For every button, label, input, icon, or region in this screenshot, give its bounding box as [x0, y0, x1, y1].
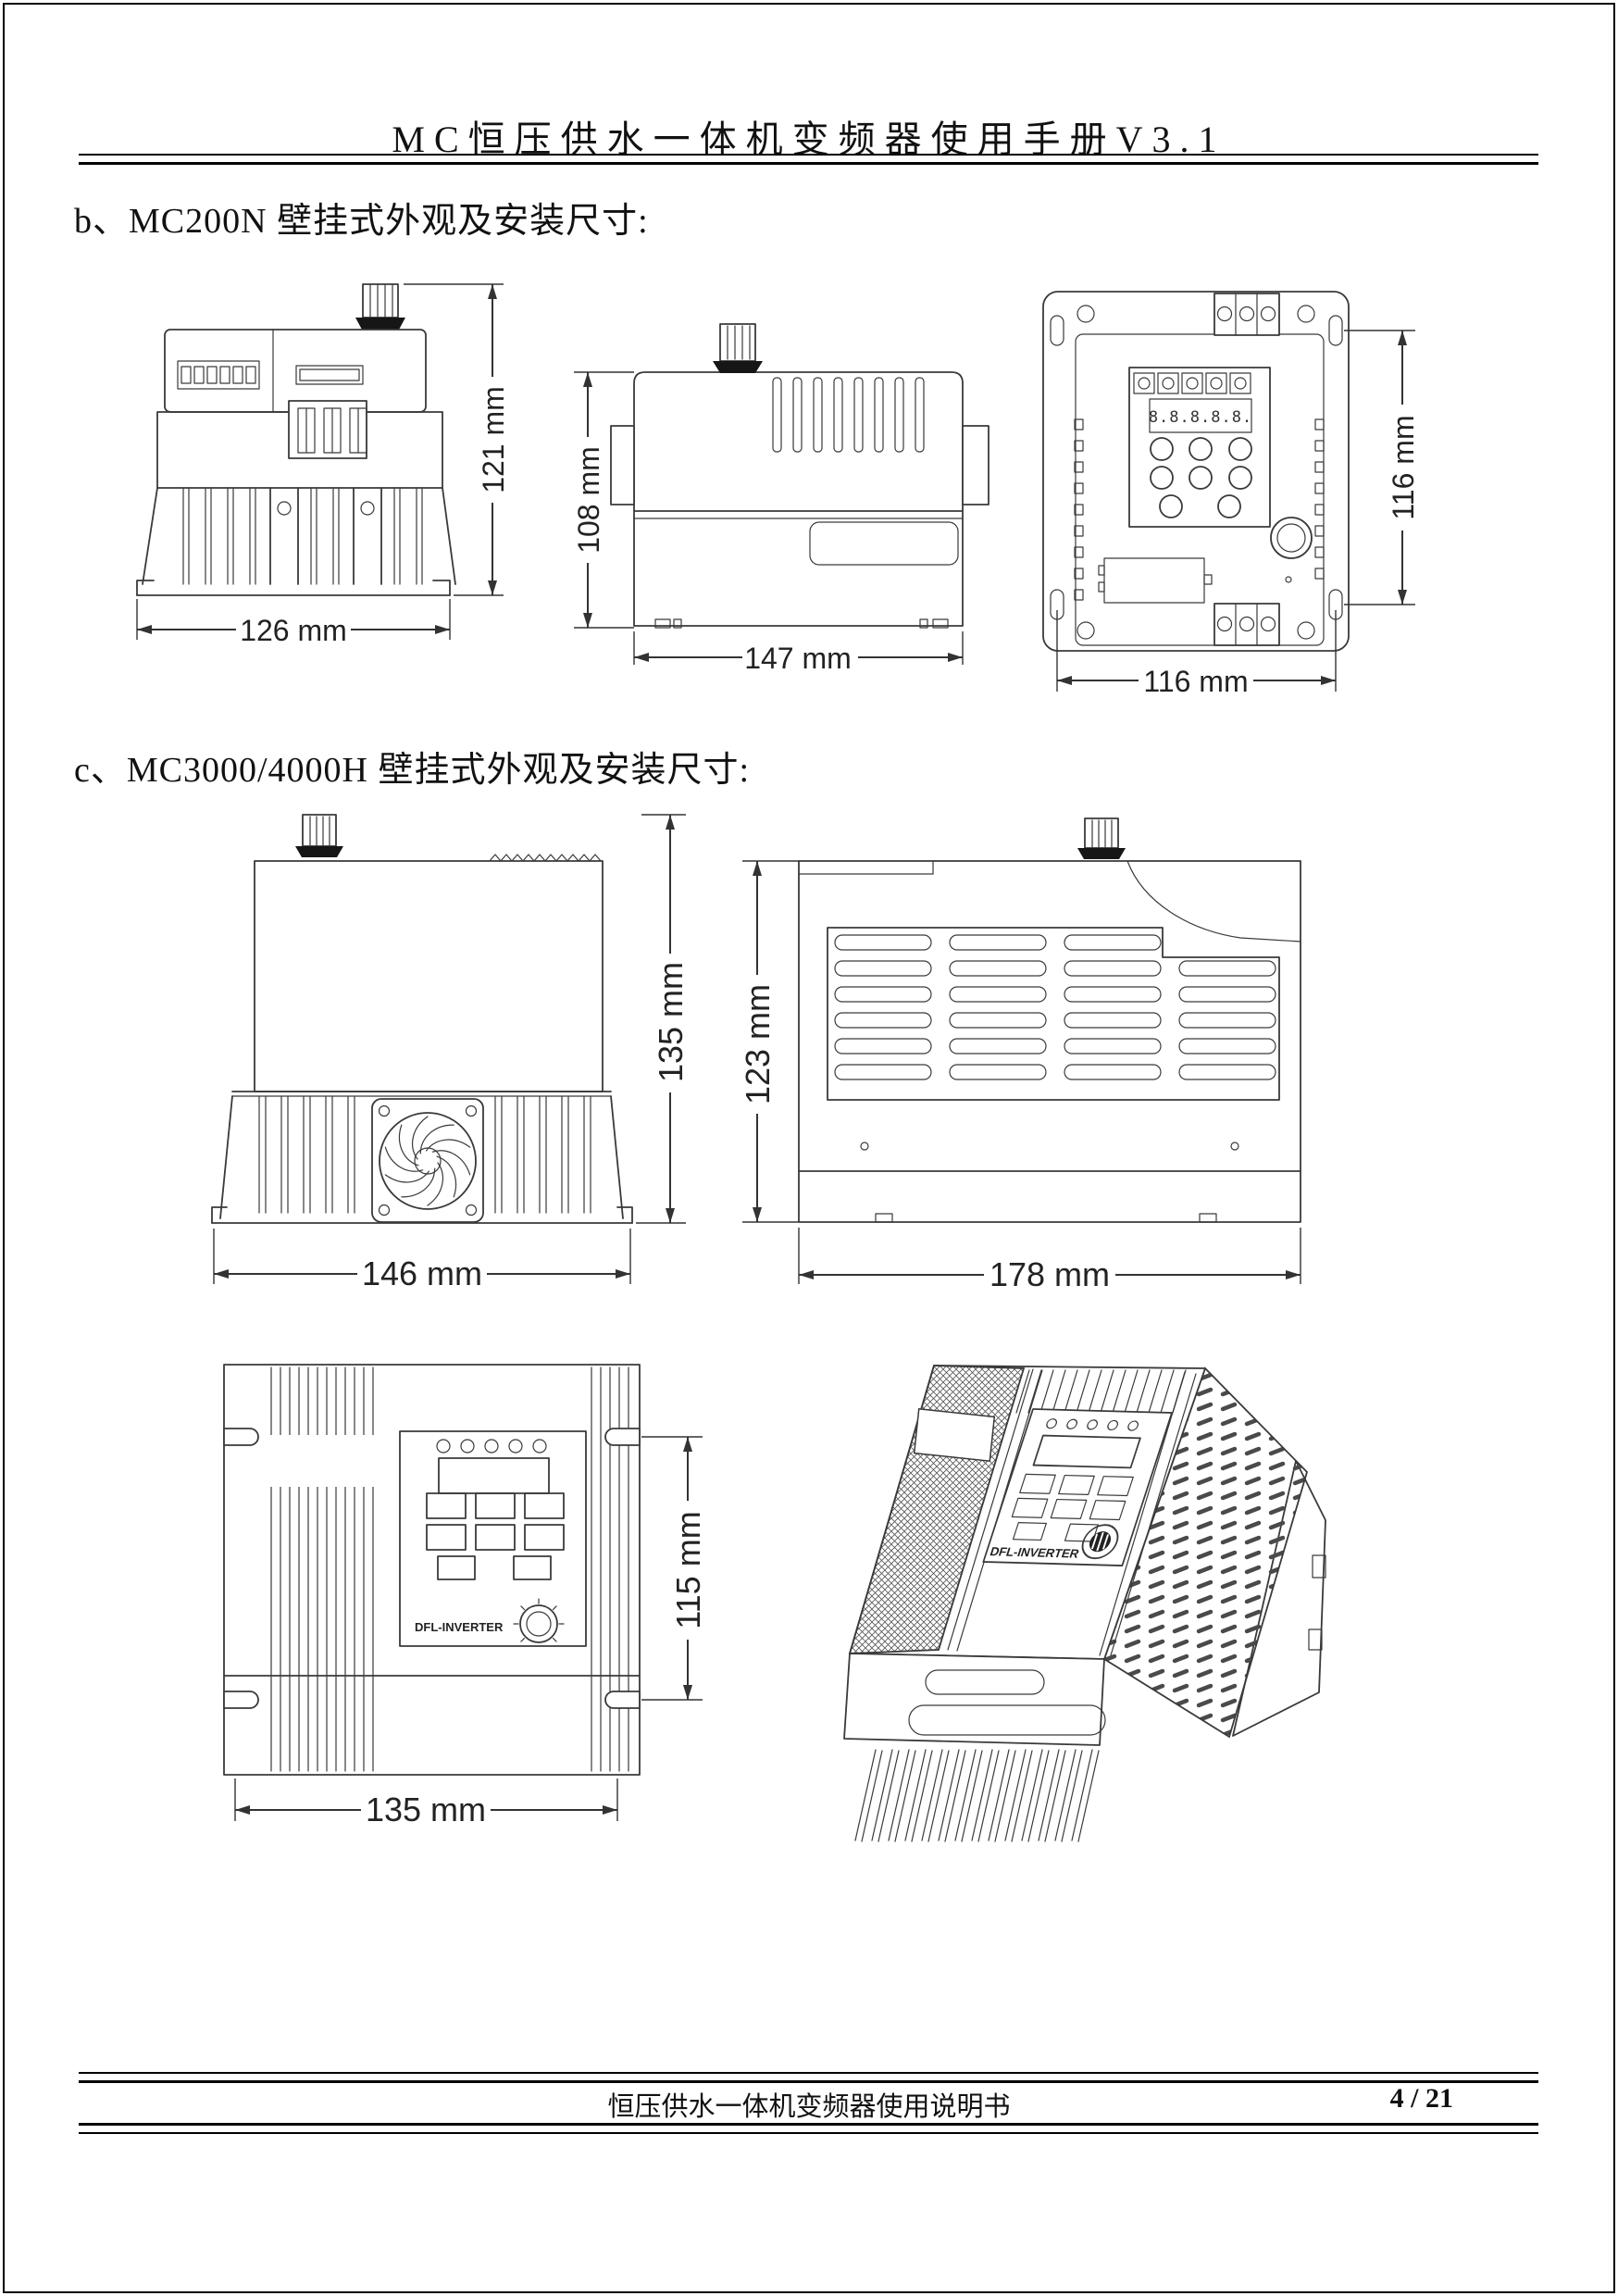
footer-rule-top: [79, 2072, 1538, 2083]
dim-label-width: 146 mm: [362, 1254, 482, 1292]
dim-label-width: 147 mm: [744, 642, 852, 671]
drawing-mc3000-side: 123 mm 178 mm: [722, 815, 1314, 1296]
mc200n-back-figure: 8.8.8.8.8.: [1043, 292, 1420, 698]
mc200n-side-figure: 108 mm 147 mm: [572, 324, 989, 671]
dimension-height: 135 mm: [636, 815, 690, 1223]
knob-icon: [1271, 518, 1312, 582]
drawing-mc3000-3d: DFL-INVERTER: [833, 1324, 1351, 1898]
recess-panel: [810, 522, 958, 565]
dimension-width: 147 mm: [634, 631, 963, 671]
dimension-width: 126 mm: [137, 599, 450, 647]
drawing-mc200n-side: 108 mm 147 mm: [546, 296, 990, 671]
dim-label-width: 178 mm: [989, 1255, 1110, 1293]
brand-label: DFL-INVERTER: [989, 1544, 1081, 1560]
dim-label-height: 121 mm: [477, 386, 510, 493]
foot-clip: [876, 1214, 892, 1222]
left-flange: [611, 426, 634, 505]
dim-label-height: 116 mm: [1387, 415, 1420, 519]
body-outline: [799, 861, 1301, 1222]
footer-rule-bottom: [79, 2123, 1538, 2134]
side-vents: [1075, 419, 1324, 600]
vent-frame: [828, 928, 1279, 1100]
knob-icon: [295, 815, 343, 857]
brand-label: DFL-INVERTER: [415, 1620, 504, 1634]
vent-slots: [773, 378, 924, 452]
dimension-height: 123 mm: [739, 861, 799, 1222]
mc200n-front-figure: 121 mm 126 mm: [137, 284, 510, 647]
dimension-height: 121 mm: [404, 284, 510, 595]
foot-clip: [1200, 1214, 1216, 1222]
knob-icon: [713, 324, 763, 373]
dimension-width: 116 mm: [1057, 610, 1336, 698]
mc3000-panel-figure: DFL-INVERTER: [224, 1365, 707, 1828]
dimension-height: 115 mm: [641, 1437, 707, 1700]
keypad: DFL-INVERTER: [400, 1431, 586, 1646]
mounting-holes: [1051, 306, 1342, 639]
dimension-width: 178 mm: [799, 1228, 1301, 1293]
dimension-width: 146 mm: [214, 1229, 630, 1292]
dim-label-height: 123 mm: [739, 984, 777, 1104]
footer-doc-title: 恒压供水一体机变频器使用说明书: [0, 2085, 1618, 2124]
mounting-base: [137, 580, 450, 595]
drawing-mc3000-panel: DFL-INVERTER: [199, 1347, 727, 1833]
dim-label-height: 135 mm: [652, 962, 690, 1082]
inner-panel: [1076, 334, 1324, 645]
knob-icon: [355, 284, 405, 330]
right-flange: [963, 426, 989, 505]
drawing-mc200n-front: 121 mm 126 mm: [130, 273, 528, 655]
drawing-mc3000-front: 135 mm 146 mm: [190, 807, 708, 1298]
mc3000-side-figure: 123 mm 178 mm: [739, 818, 1301, 1293]
heatsink-fins: [143, 488, 455, 584]
heatsink-fins: [855, 1750, 1099, 1841]
dim-label-width: 126 mm: [240, 614, 347, 647]
bottom-terminal: [1214, 604, 1279, 645]
knob-icon: [1077, 818, 1126, 859]
dim-label-height: 115 mm: [669, 1511, 707, 1628]
cooling-fan: [372, 1099, 483, 1222]
dimension-height: 116 mm: [1344, 331, 1420, 605]
mc3000-front-figure: 135 mm 146 mm: [212, 815, 690, 1292]
cable-clamp: [1099, 558, 1212, 603]
keypad: 8.8.8.8.8.: [1129, 368, 1270, 527]
bottom-skirt: [844, 1653, 1105, 1745]
terminal-strip: [178, 361, 259, 389]
body-outline: [255, 861, 603, 1092]
enclosure-outline: [1043, 292, 1349, 651]
manual-page: MC恒压供水一体机变频器使用手册V3.1 b、MC200N 壁挂式外观及安装尺寸…: [0, 0, 1618, 2296]
serrated-edge: [490, 855, 601, 861]
section-c-title: c、MC3000/4000H 壁挂式外观及安装尺寸:: [74, 741, 750, 792]
body-outline: [634, 372, 963, 626]
vent-slot: [296, 366, 363, 384]
panel-notch: [1127, 861, 1301, 942]
mc3000-3d-figure: DFL-INVERTER: [844, 1366, 1326, 1841]
drawing-mc200n-back: 8.8.8.8.8.: [1014, 264, 1453, 704]
dim-label-height: 108 mm: [572, 446, 605, 554]
power-terminal: [289, 401, 367, 458]
screw-hole: [1231, 1142, 1238, 1150]
top-terminal: [1214, 293, 1279, 335]
header-rule: [79, 154, 1538, 165]
screw-hole: [861, 1142, 868, 1150]
nameplate: [915, 1409, 995, 1461]
nameplate: [264, 1435, 379, 1487]
section-b-title: b、MC200N 壁挂式外观及安装尺寸:: [74, 192, 649, 243]
footer-page-number: 4 / 21: [1390, 2083, 1453, 2115]
display-digits: 8.8.8.8.8.: [1149, 408, 1252, 427]
dimension-width: 135 mm: [235, 1778, 617, 1828]
dim-label-width: 116 mm: [1143, 665, 1248, 698]
dim-label-width: 135 mm: [366, 1791, 486, 1828]
